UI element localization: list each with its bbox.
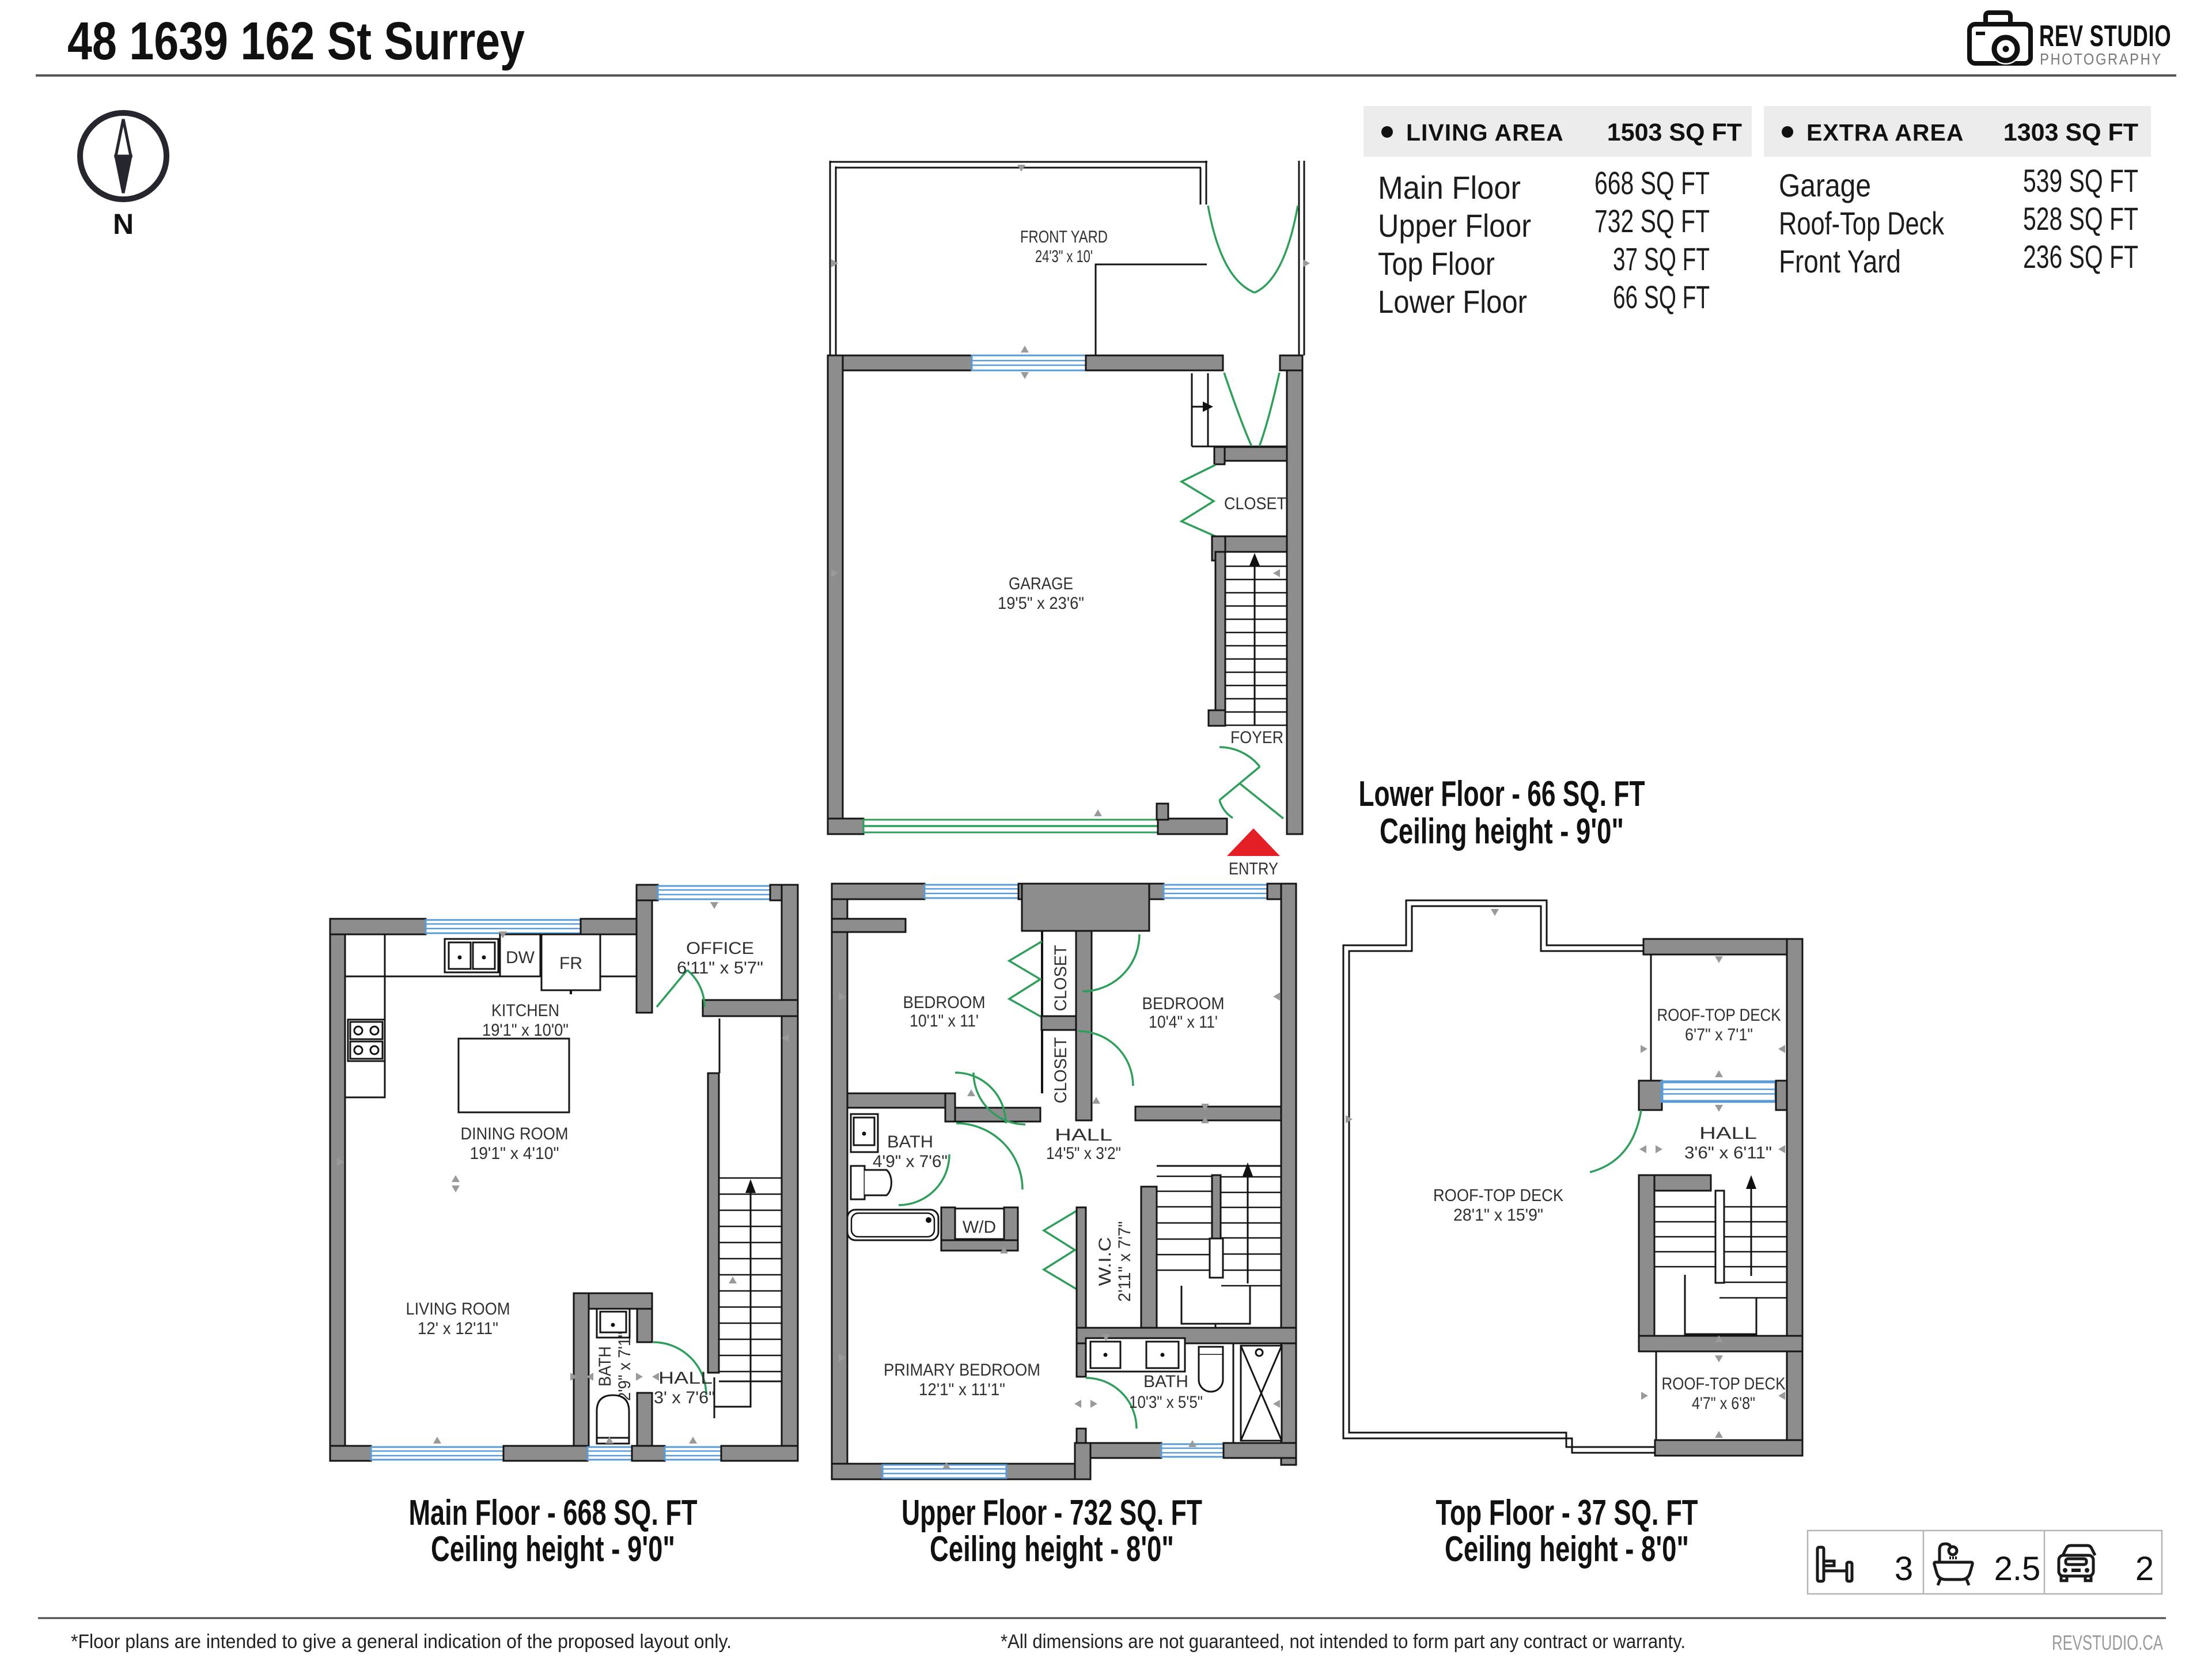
svg-text:48 1639 162 St Surrey: 48 1639 162 St Surrey — [67, 11, 525, 71]
svg-text:LIVING AREA: LIVING AREA — [1406, 119, 1564, 146]
svg-text:ENTRY: ENTRY — [1229, 859, 1278, 878]
svg-text:N: N — [113, 208, 134, 240]
svg-text:12'1" x 11'1": 12'1" x 11'1" — [919, 1380, 1005, 1399]
svg-text:19'1" x 10'0": 19'1" x 10'0" — [482, 1021, 569, 1040]
svg-text:4'9" x 7'6": 4'9" x 7'6" — [873, 1152, 948, 1171]
svg-text:Front Yard: Front Yard — [1779, 243, 1901, 279]
svg-text:Top Floor: Top Floor — [1378, 245, 1495, 282]
svg-text:CLOSET: CLOSET — [1051, 1037, 1070, 1104]
svg-text:3'6" x 6'11": 3'6" x 6'11" — [1684, 1143, 1772, 1162]
svg-text:OFFICE: OFFICE — [686, 939, 754, 958]
svg-text:Main Floor - 668 SQ. FT: Main Floor - 668 SQ. FT — [409, 1493, 698, 1533]
svg-text:1503 SQ FT: 1503 SQ FT — [1607, 119, 1742, 146]
svg-text:DW: DW — [506, 948, 535, 967]
svg-text:Garage: Garage — [1779, 167, 1871, 203]
svg-text:14'5" x 3'2": 14'5" x 3'2" — [1046, 1144, 1121, 1163]
svg-text:REVSTUDIO.CA: REVSTUDIO.CA — [2052, 1631, 2163, 1654]
svg-text:ROOF-TOP DECK: ROOF-TOP DECK — [1433, 1186, 1563, 1205]
svg-text:BATH: BATH — [596, 1346, 615, 1387]
svg-text:ROOF-TOP DECK: ROOF-TOP DECK — [1657, 1006, 1781, 1025]
svg-text:ROOF-TOP DECK: ROOF-TOP DECK — [1662, 1374, 1786, 1393]
svg-text:Upper Floor - 732 SQ. FT: Upper Floor - 732 SQ. FT — [902, 1493, 1202, 1533]
svg-text:Ceiling height - 9'0": Ceiling height - 9'0" — [1380, 812, 1624, 851]
svg-text:10'1" x 11': 10'1" x 11' — [910, 1012, 979, 1031]
svg-text:19'5" x 23'6": 19'5" x 23'6" — [998, 594, 1084, 613]
svg-text:HALL: HALL — [658, 1369, 713, 1388]
svg-text:28'1" x 15'9": 28'1" x 15'9" — [1453, 1206, 1543, 1225]
svg-text:12' x 12'11": 12' x 12'11" — [418, 1319, 498, 1338]
svg-text:Roof-Top Deck: Roof-Top Deck — [1779, 205, 1945, 241]
svg-text:4'7" x 6'8": 4'7" x 6'8" — [1692, 1394, 1755, 1413]
svg-text:Ceiling height - 9'0": Ceiling height - 9'0" — [431, 1529, 675, 1569]
svg-text:10'3" x 5'5": 10'3" x 5'5" — [1129, 1393, 1203, 1412]
svg-text:24'3" x 10': 24'3" x 10' — [1035, 247, 1093, 266]
svg-text:BATH: BATH — [1143, 1372, 1188, 1391]
svg-text:CLOSET: CLOSET — [1224, 494, 1286, 513]
svg-text:REV STUDIO: REV STUDIO — [2039, 18, 2171, 52]
svg-text:236 SQ FT: 236 SQ FT — [2023, 238, 2138, 275]
svg-text:BEDROOM: BEDROOM — [1142, 994, 1225, 1013]
svg-text:KITCHEN: KITCHEN — [491, 1001, 559, 1020]
svg-text:*Floor plans are intended to g: *Floor plans are intended to give a gene… — [71, 1631, 732, 1653]
svg-text:6'11" x 5'7": 6'11" x 5'7" — [677, 959, 763, 978]
svg-text:Main Floor: Main Floor — [1378, 169, 1521, 206]
svg-text:W/D: W/D — [963, 1218, 996, 1237]
svg-text:FOYER: FOYER — [1230, 728, 1283, 747]
svg-text:*All dimensions are not guaran: *All dimensions are not guaranteed, not … — [1001, 1631, 1685, 1653]
svg-text:LIVING ROOM: LIVING ROOM — [406, 1300, 510, 1319]
svg-text:668 SQ FT: 668 SQ FT — [1594, 165, 1710, 201]
svg-text:528 SQ FT: 528 SQ FT — [2023, 200, 2138, 237]
svg-text:Ceiling height - 8'0": Ceiling height - 8'0" — [930, 1529, 1174, 1569]
svg-text:PHOTOGRAPHY: PHOTOGRAPHY — [2040, 50, 2162, 68]
svg-text:GARAGE: GARAGE — [1009, 574, 1073, 593]
svg-text:EXTRA AREA: EXTRA AREA — [1806, 119, 1964, 146]
svg-text:FR: FR — [559, 954, 582, 973]
svg-text:W.I.C: W.I.C — [1096, 1237, 1115, 1286]
svg-text:539 SQ FT: 539 SQ FT — [2023, 162, 2138, 199]
svg-text:2: 2 — [2135, 1550, 2154, 1588]
svg-text:Lower Floor: Lower Floor — [1378, 283, 1527, 320]
svg-text:19'1" x 4'10": 19'1" x 4'10" — [470, 1144, 559, 1163]
svg-text:FRONT YARD: FRONT YARD — [1020, 228, 1108, 247]
svg-text:DINING ROOM: DINING ROOM — [461, 1124, 569, 1143]
svg-text:732 SQ FT: 732 SQ FT — [1594, 203, 1710, 239]
svg-text:37 SQ FT: 37 SQ FT — [1613, 241, 1710, 277]
svg-text:Ceiling height - 8'0": Ceiling height - 8'0" — [1445, 1529, 1689, 1569]
svg-text:HALL: HALL — [1055, 1126, 1112, 1145]
svg-text:1303 SQ FT: 1303 SQ FT — [2003, 119, 2138, 146]
svg-text:2.5: 2.5 — [1994, 1550, 2041, 1588]
svg-text:2'11" x 7'7": 2'11" x 7'7" — [1115, 1221, 1134, 1302]
svg-text:Lower Floor - 66 SQ. FT: Lower Floor - 66 SQ. FT — [1359, 774, 1645, 814]
svg-text:10'4" x 11': 10'4" x 11' — [1149, 1013, 1218, 1032]
svg-text:PRIMARY BEDROOM: PRIMARY BEDROOM — [884, 1361, 1040, 1380]
svg-text:Upper Floor: Upper Floor — [1378, 207, 1531, 244]
svg-text:6'7" x 7'1": 6'7" x 7'1" — [1685, 1025, 1753, 1044]
svg-text:CLOSET: CLOSET — [1051, 945, 1070, 1012]
svg-text:HALL: HALL — [1699, 1124, 1757, 1143]
svg-text:3: 3 — [1895, 1550, 1913, 1588]
svg-text:2'9" x 7'1": 2'9" x 7'1" — [615, 1332, 634, 1401]
svg-text:Top Floor - 37 SQ. FT: Top Floor - 37 SQ. FT — [1436, 1493, 1698, 1533]
svg-text:3' x 7'6": 3' x 7'6" — [654, 1388, 715, 1407]
svg-text:BATH: BATH — [887, 1132, 933, 1152]
svg-text:BEDROOM: BEDROOM — [903, 993, 986, 1012]
svg-text:66 SQ FT: 66 SQ FT — [1613, 279, 1710, 315]
